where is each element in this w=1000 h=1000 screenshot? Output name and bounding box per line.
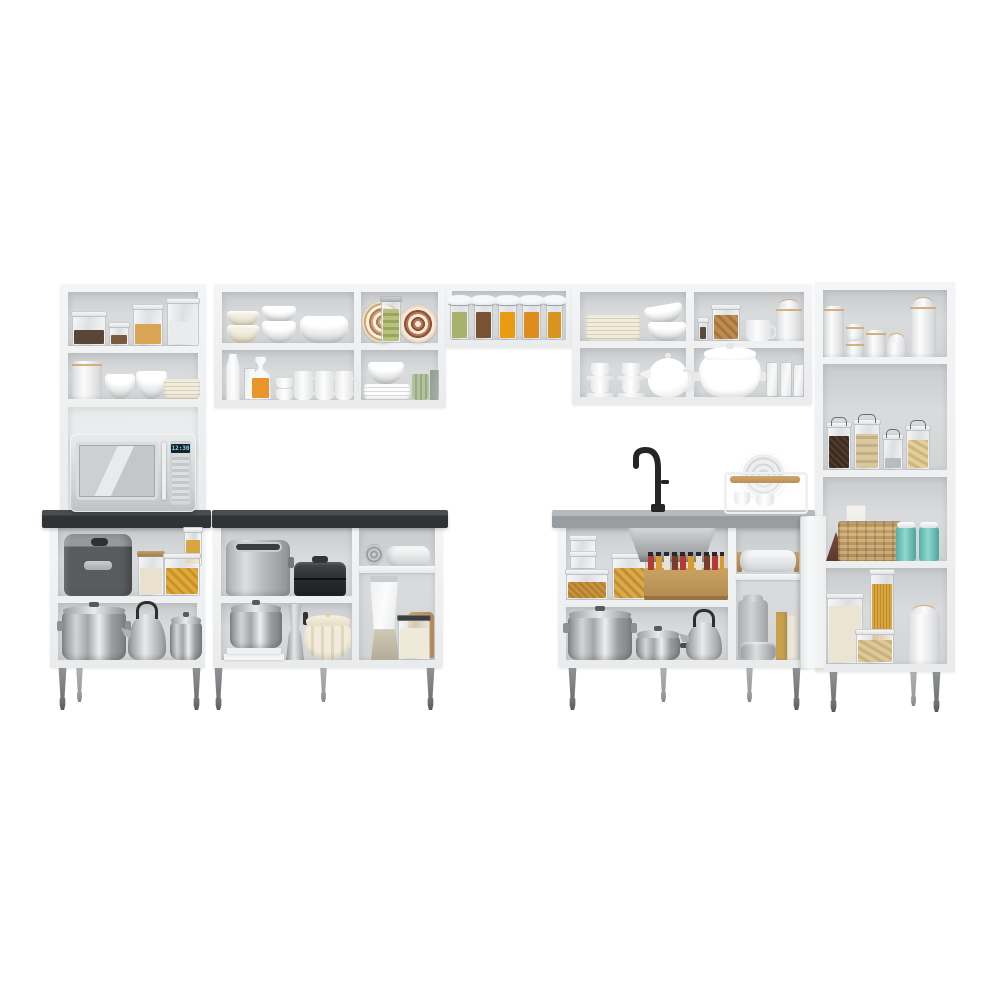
cabinet-leg [790,668,803,710]
cabinet-leg [190,668,203,710]
soup-tureen [699,356,761,397]
cereal-fill [74,330,104,344]
biscuit-jar [854,424,880,470]
large-serving-bowl [300,316,348,343]
pot-handle [563,623,569,633]
cabinet-leg [424,668,437,710]
ceramic-canister-round [886,340,907,357]
dish-rack [724,450,808,512]
rolled-white-towel [386,546,430,566]
white-mug [335,371,353,400]
ceramic-canister-medium [866,330,886,357]
rolled-gray-towel [364,544,384,565]
decorative-plate [399,305,437,343]
microwave-handle [162,442,166,500]
baking-dish [224,654,284,660]
cereal-jar [72,316,106,346]
ceramic-canister-small [846,324,864,340]
espresso-saucer [586,393,614,397]
preserve-jar-peach [522,303,541,340]
steel-tin [740,642,776,660]
cabinet-leg [744,668,755,702]
kitchen-cabinet-set-photo: 12:30 [0,0,1000,1000]
pasta-container [612,558,646,600]
countertop-black-left [42,510,211,528]
white-mug [294,371,313,400]
cabinet-leg [74,668,85,702]
cabinet-leg [908,672,919,706]
white-cup [746,320,771,341]
gold-rim-canister [776,306,802,341]
yellow-pasta-container [164,558,200,596]
cabinet-leg [212,668,225,710]
sink-cabinet-open-door [800,516,826,669]
microwave-keypad [172,457,189,501]
flour-container [398,620,430,660]
cabinet-leg [566,668,579,710]
cabinet-leg [318,668,329,702]
microwave-clock: 12:30 [171,444,190,453]
teapot [648,358,688,397]
cornflakes-jar [133,309,163,346]
microwave-window [76,442,158,500]
wooden-board [730,476,800,483]
dutch-oven [304,624,352,660]
spice-jars-row [648,555,724,570]
countertop-black-mid [212,510,448,528]
wood-lid-jar [138,556,164,596]
beige-plate-stack [164,379,200,399]
microwave: 12:30 [70,434,196,512]
recipe-book [788,614,798,660]
baking-dish [227,648,281,654]
cookie-jar [712,309,740,341]
white-mug [315,371,334,400]
towel-on-rail [740,550,796,572]
grain-container [566,574,608,600]
white-plate-stack [364,384,410,400]
tureen-handle [694,372,700,381]
large-pot [62,612,126,660]
cabinet-leg [827,672,840,712]
small-pot [170,622,202,660]
dark-glass [430,370,439,400]
cabinet-leg [930,672,943,712]
cabinet-leg [658,668,669,702]
teal-tin [919,527,939,561]
toaster [226,540,290,596]
recipe-book [776,612,787,660]
pasta-container [856,634,894,664]
saucepan [636,636,680,660]
base-mid-mini-shelf [359,566,435,573]
coffee-bean-jar [827,427,851,470]
green-ribbed-cup [412,374,429,400]
orange-juice [252,378,269,398]
blender-base [371,630,399,660]
wicker-basket [838,521,902,561]
wood-lid-canister [72,361,102,399]
preserve-jar-pickles [450,303,469,340]
teal-tin [896,527,916,561]
drying-cup [756,494,774,506]
small-jar [109,327,129,346]
ceramic-canister-tall [824,306,844,357]
ribbed-plate-stack [586,315,640,341]
espresso-cup [591,380,609,393]
white-storage-container [167,303,199,346]
drinking-glass [766,362,778,397]
sink-right-shelf [736,574,800,580]
small-wire-jar [883,439,903,470]
faucet [628,434,672,512]
drying-cup [734,492,750,505]
pot-handle [57,621,63,631]
preserve-jar-honey [546,303,563,340]
pickle-jar [381,301,401,343]
spice-jar [698,322,708,341]
ceramic-canister-tallest [910,304,936,357]
stacked-cups [276,378,293,388]
air-fryer [64,534,132,596]
pot-with-glass-lid [230,610,282,648]
cabinet-leg [56,668,69,710]
preserve-jar-chutney [474,303,493,340]
white-canister [908,612,940,664]
pasta-shell-jar [906,430,930,470]
pot-handle [631,623,637,633]
pickles [383,309,399,341]
stock-pot [568,616,632,660]
spice-rack [644,568,728,600]
sandwich-grill [294,562,346,596]
preserve-jar-orange [498,303,517,340]
